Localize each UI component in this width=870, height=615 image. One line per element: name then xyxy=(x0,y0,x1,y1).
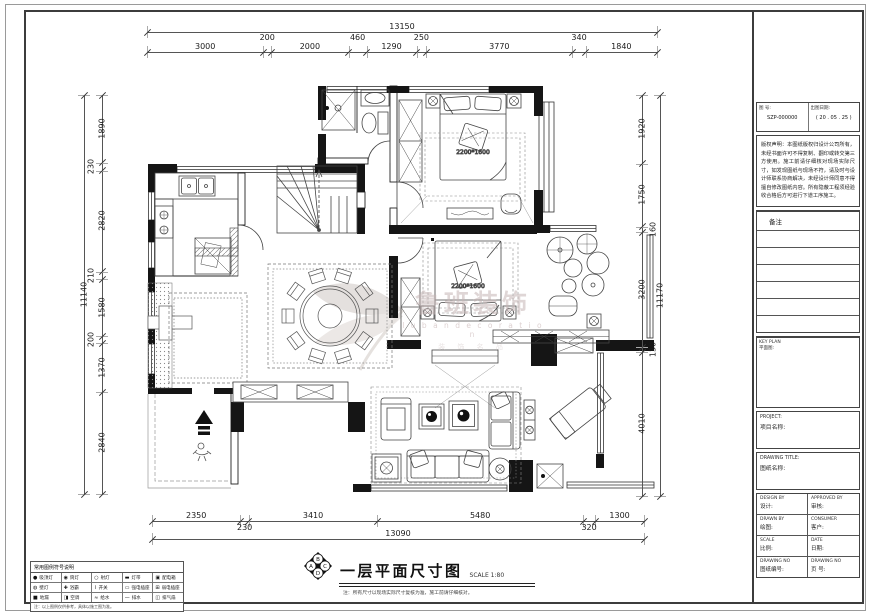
dim-label: 1300 xyxy=(609,511,629,520)
legend-symbol-icon: — xyxy=(125,595,130,601)
date-label: 出图日期: xyxy=(811,105,858,111)
legend-item: ▭强电插座 xyxy=(123,583,154,592)
dim-label: 2820 xyxy=(98,204,107,238)
legend-row: ■地漏◨空调≈给水—排水◫排气扇 xyxy=(31,593,183,602)
legend-item: ▣配电箱 xyxy=(153,573,183,582)
signoff-cn-label: 设计: xyxy=(760,502,804,510)
signoff-cn-label: 绘图: xyxy=(760,523,804,531)
signoff-cn-label: 页 号: xyxy=(811,565,856,573)
walkway xyxy=(148,394,231,488)
legend-item: —排水 xyxy=(123,593,154,602)
dim-label: 2000 xyxy=(300,42,320,51)
hatch-walls xyxy=(195,228,238,276)
signoff-grid: DESIGN BY设计:APPROVED BY审核:DRAWN BY绘图:CON… xyxy=(756,493,860,578)
dim-label: 11170 xyxy=(656,278,665,312)
signoff-cn-label: 比例: xyxy=(760,544,804,552)
legend-symbol-icon: ⌇ xyxy=(94,585,96,591)
tv-cabinet xyxy=(233,382,348,402)
legend-header: 常用图例符号说明 xyxy=(31,562,183,573)
legend-symbol-icon: ◫ xyxy=(155,595,160,601)
remarks-section: 备注 xyxy=(756,210,860,333)
legend-item: ▬灯带 xyxy=(123,573,154,582)
dim-chain-right-segments: 1920175016032001304010 xyxy=(632,95,648,496)
remark-row xyxy=(757,231,859,248)
dim-chain-bottom-segments: 2350230341054803201300 xyxy=(152,511,644,527)
legend-row: ◍壁灯✚浴霸⌇开关▭强电插座⊞弱电插座 xyxy=(31,583,183,593)
titleblock-header: 图 号: SZP-000000 出图日期: ( 20 . 05 . 25 ) xyxy=(756,102,860,132)
signoff-en-label: DRAWING NO xyxy=(760,559,804,564)
signoff-en-label: DRAWN BY xyxy=(760,517,804,522)
legend-item: ■地漏 xyxy=(31,593,62,602)
legend-label: 吸顶灯 xyxy=(39,575,53,581)
project-section: PROJECT: 项目名称: xyxy=(756,411,860,449)
legend-item: ≈给水 xyxy=(92,593,123,602)
dining-chairs xyxy=(282,268,378,364)
legend-symbol-icon: ⊞ xyxy=(155,585,159,591)
remark-row xyxy=(757,282,859,299)
doc-no-value: SZP-000000 xyxy=(759,115,806,121)
keyplan-cn-label: 平面图: xyxy=(759,345,857,351)
dim-chain-left-segments: 18902302820210158020013702840 xyxy=(92,95,108,494)
dim-label: 1890 xyxy=(98,111,107,145)
bedroom-2: 2200*1600 xyxy=(398,238,518,408)
legend-label: 弱电插座 xyxy=(162,585,180,591)
legend-symbol-icon: ◍ xyxy=(33,585,37,591)
dim-label: 230 xyxy=(87,149,96,183)
bed1-size-label: 2200*1600 xyxy=(456,149,490,156)
legend-symbol-icon: ▣ xyxy=(155,575,160,581)
dim-label: 200 xyxy=(260,33,275,42)
dim-label: 3200 xyxy=(638,272,647,306)
elevation-marker-icon: B A C D xyxy=(303,551,333,581)
dim-chain-right-total: 11170 xyxy=(650,95,666,496)
dim-label: 1370 xyxy=(98,350,107,384)
remarks-label: 备注 xyxy=(757,212,859,231)
titleblock-divider xyxy=(752,10,754,604)
keyplan-section: KEY PLAN 平面图: xyxy=(756,336,860,408)
bathroom xyxy=(322,90,390,163)
signoff-cell: DRAWN BY绘图: xyxy=(757,515,808,536)
legend-label: 空调 xyxy=(70,595,79,601)
remark-row xyxy=(757,265,859,282)
dim-label: 3000 xyxy=(195,42,215,51)
legend-symbol-icon: ● xyxy=(33,575,37,581)
legend-symbol-icon: ◨ xyxy=(64,595,69,601)
legend-label: 地漏 xyxy=(40,595,49,601)
signoff-cn-label: 客户: xyxy=(811,523,856,531)
legend-caption: 注：以上图例仅供参考，具体以施工图为准。 xyxy=(31,602,183,611)
legend-item: ⌇开关 xyxy=(92,583,123,592)
svg-text:C: C xyxy=(323,564,327,570)
title-underline-2 xyxy=(339,586,535,587)
dim-label: 2840 xyxy=(98,426,107,460)
legend-label: 开关 xyxy=(99,585,108,591)
legend-symbol-icon: ≈ xyxy=(94,595,98,601)
legend-symbol-icon: ○ xyxy=(94,575,98,581)
copyright-notice: 版权声明：本图纸版权归设计公司所有，未经书面许可不得复制、翻印或转交第三方使用。… xyxy=(756,135,860,207)
dim-label: 210 xyxy=(87,258,96,292)
legend-label: 强电插座 xyxy=(132,585,150,591)
signoff-cn-label: 日期: xyxy=(811,544,856,552)
drawing-title-cn-label: 图纸名称: xyxy=(760,463,856,472)
drawing-sheet: { "sheet": { "title": "一层平面尺寸图", "scale_… xyxy=(0,0,870,615)
dim-label: 1840 xyxy=(611,42,631,51)
floor-plan: 2200*1600 2200*1600 xyxy=(135,78,660,498)
drawing-title-label: DRAWING TITLE: xyxy=(760,456,856,461)
signoff-cell: DRAWING NO页 号: xyxy=(808,557,859,577)
signoff-en-label: DESIGN BY xyxy=(760,496,804,501)
legend-label: 射灯 xyxy=(101,575,110,581)
legend-label: 筒灯 xyxy=(70,575,79,581)
dim-label: 200 xyxy=(87,322,96,356)
legend-symbol-icon: ▭ xyxy=(125,585,130,591)
legend-item: ◍壁灯 xyxy=(31,583,62,592)
date-value: ( 20 . 05 . 25 ) xyxy=(811,115,858,121)
legend-label: 排水 xyxy=(132,595,141,601)
remark-row xyxy=(757,299,859,316)
legend-table: 常用图例符号说明 ●吸顶灯◉筒灯○射灯▬灯带▣配电箱◍壁灯✚浴霸⌇开关▭强电插座… xyxy=(30,561,184,612)
titleblock: 图 号: SZP-000000 出图日期: ( 20 . 05 . 25 ) 版… xyxy=(756,102,860,581)
drawing-title-section: DRAWING TITLE: 图纸名称: xyxy=(756,452,860,490)
dim-label: 4010 xyxy=(638,407,647,441)
title-note: 注：所有尺寸以现场实际尺寸复核为准，施工前请仔细核对。 xyxy=(343,589,553,596)
signoff-en-label: SCALE xyxy=(760,538,804,543)
stairs xyxy=(277,166,357,233)
entry-opening xyxy=(192,387,214,395)
entry-arrow xyxy=(193,410,213,461)
signoff-en-label: DATE xyxy=(811,538,856,543)
dim-label: 1750 xyxy=(638,178,647,212)
dim-label: 5480 xyxy=(470,511,490,520)
legend-label: 给水 xyxy=(100,595,109,601)
legend-label: 配电箱 xyxy=(162,575,176,581)
legend-label: 壁灯 xyxy=(39,585,48,591)
legend-label: 灯带 xyxy=(132,575,141,581)
legend-symbol-icon: ▬ xyxy=(125,575,130,581)
dim-chain-bottom-total: 13090 xyxy=(152,529,644,545)
signoff-cell: SCALE比例: xyxy=(757,536,808,557)
legend-symbol-icon: ◉ xyxy=(64,575,68,581)
signoff-en-label: CONSUMER xyxy=(811,517,856,522)
dim-label: 13150 xyxy=(389,22,414,31)
remark-row xyxy=(757,248,859,265)
signoff-cn-label: 审核: xyxy=(811,502,856,510)
legend-label: 浴霸 xyxy=(70,585,79,591)
legend-item: ●吸顶灯 xyxy=(31,573,62,582)
person-figure xyxy=(193,443,211,461)
page-title: 一层平面尺寸图 xyxy=(340,560,463,581)
dim-label: 340 xyxy=(571,33,586,42)
signoff-cell: APPROVED BY审核: xyxy=(808,494,859,515)
svg-text:B: B xyxy=(316,557,320,563)
svg-text:A: A xyxy=(309,564,313,570)
dim-chain-top-segments: 30002002000460129025037703401840 xyxy=(147,42,657,58)
dim-label: 1580 xyxy=(98,290,107,324)
dim-label: 1920 xyxy=(638,112,647,146)
signoff-cell: DESIGN BY设计: xyxy=(757,494,808,515)
legend-symbol-icon: ■ xyxy=(33,595,38,601)
dim-label: 460 xyxy=(350,33,365,42)
dim-label: 1290 xyxy=(381,42,401,51)
legend-item: ⊞弱电插座 xyxy=(153,583,183,592)
legend-symbol-icon: ✚ xyxy=(64,585,68,591)
signoff-en-label: DRAWING NO xyxy=(811,559,856,564)
dim-label: 3770 xyxy=(489,42,509,51)
kitchen xyxy=(155,173,263,276)
dim-label: 13090 xyxy=(385,529,410,538)
signoff-cell: CONSUMER客户: xyxy=(808,515,859,536)
dim-label: 250 xyxy=(414,33,429,42)
legend-item: ◫排气扇 xyxy=(153,593,183,602)
signoff-cn-label: 图纸编号: xyxy=(760,565,804,573)
left-room xyxy=(169,293,247,383)
terrace xyxy=(493,234,609,343)
bed2-size-label: 2200*1600 xyxy=(451,283,485,290)
dim-label: 3410 xyxy=(303,511,323,520)
project-cn-label: 项目名称: xyxy=(760,422,856,431)
project-label: PROJECT: xyxy=(760,415,856,420)
plan-title-group: B A C D 一层平面尺寸图 SCALE 1:80 注：所有尺寸以现场实际尺寸… xyxy=(303,551,553,596)
legend-item: ◨空调 xyxy=(62,593,93,602)
legend-item: ✚浴霸 xyxy=(62,583,93,592)
signoff-en-label: APPROVED BY xyxy=(811,496,856,501)
title-underline xyxy=(339,583,535,584)
signoff-cell: DRAWING NO图纸编号: xyxy=(757,557,808,577)
bedroom-1: 2200*1600 xyxy=(397,94,533,223)
legend-item: ◉筒灯 xyxy=(62,573,93,582)
legend-label: 排气扇 xyxy=(162,595,176,601)
doc-no-label: 图 号: xyxy=(759,105,806,111)
legend-row: ●吸顶灯◉筒灯○射灯▬灯带▣配电箱 xyxy=(31,573,183,583)
remark-row xyxy=(757,316,859,332)
dim-label: 2350 xyxy=(186,511,206,520)
scale-label: SCALE 1:80 xyxy=(470,572,505,581)
signoff-cell: DATE日期: xyxy=(808,536,859,557)
legend-item: ○射灯 xyxy=(92,573,123,582)
svg-text:D: D xyxy=(316,571,320,577)
